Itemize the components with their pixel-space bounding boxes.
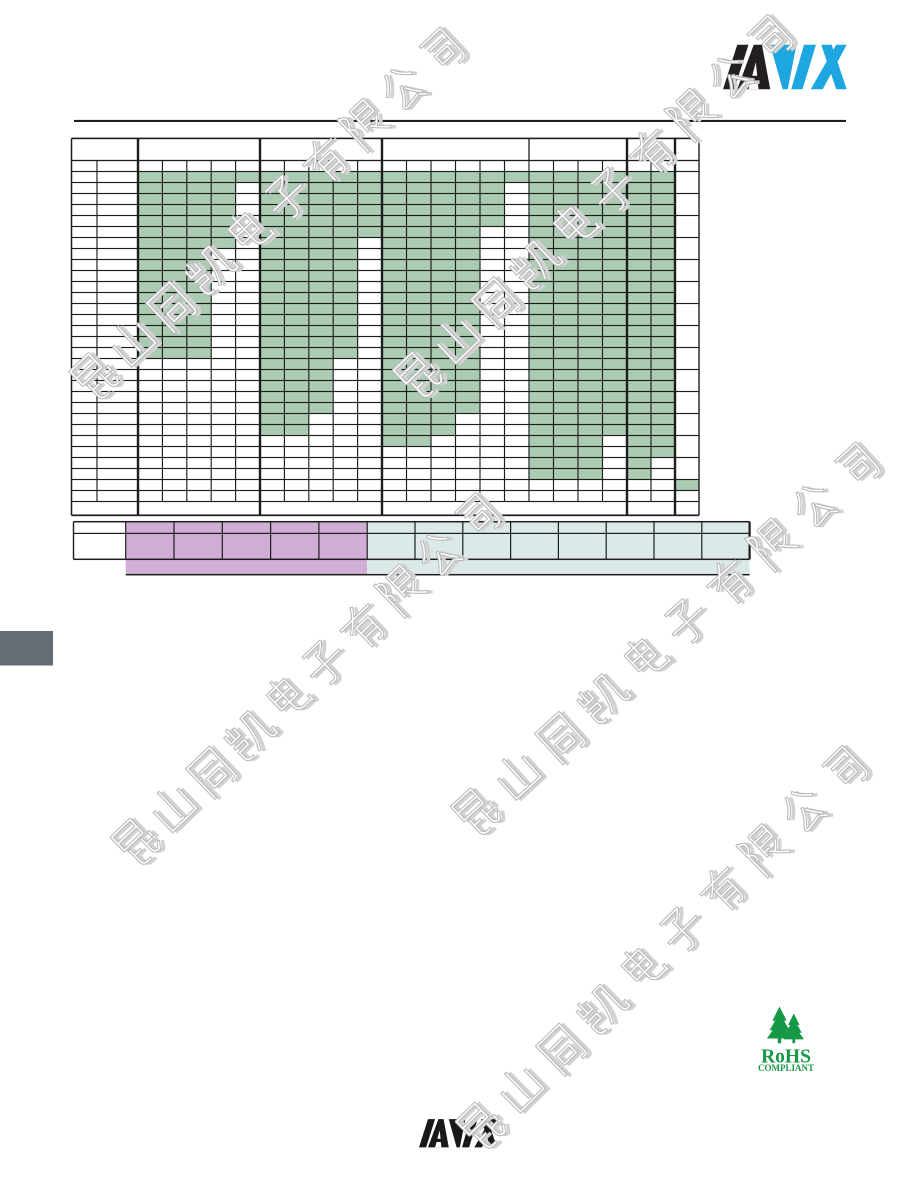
svg-text:COMPLIANT: COMPLIANT — [758, 1063, 814, 1073]
